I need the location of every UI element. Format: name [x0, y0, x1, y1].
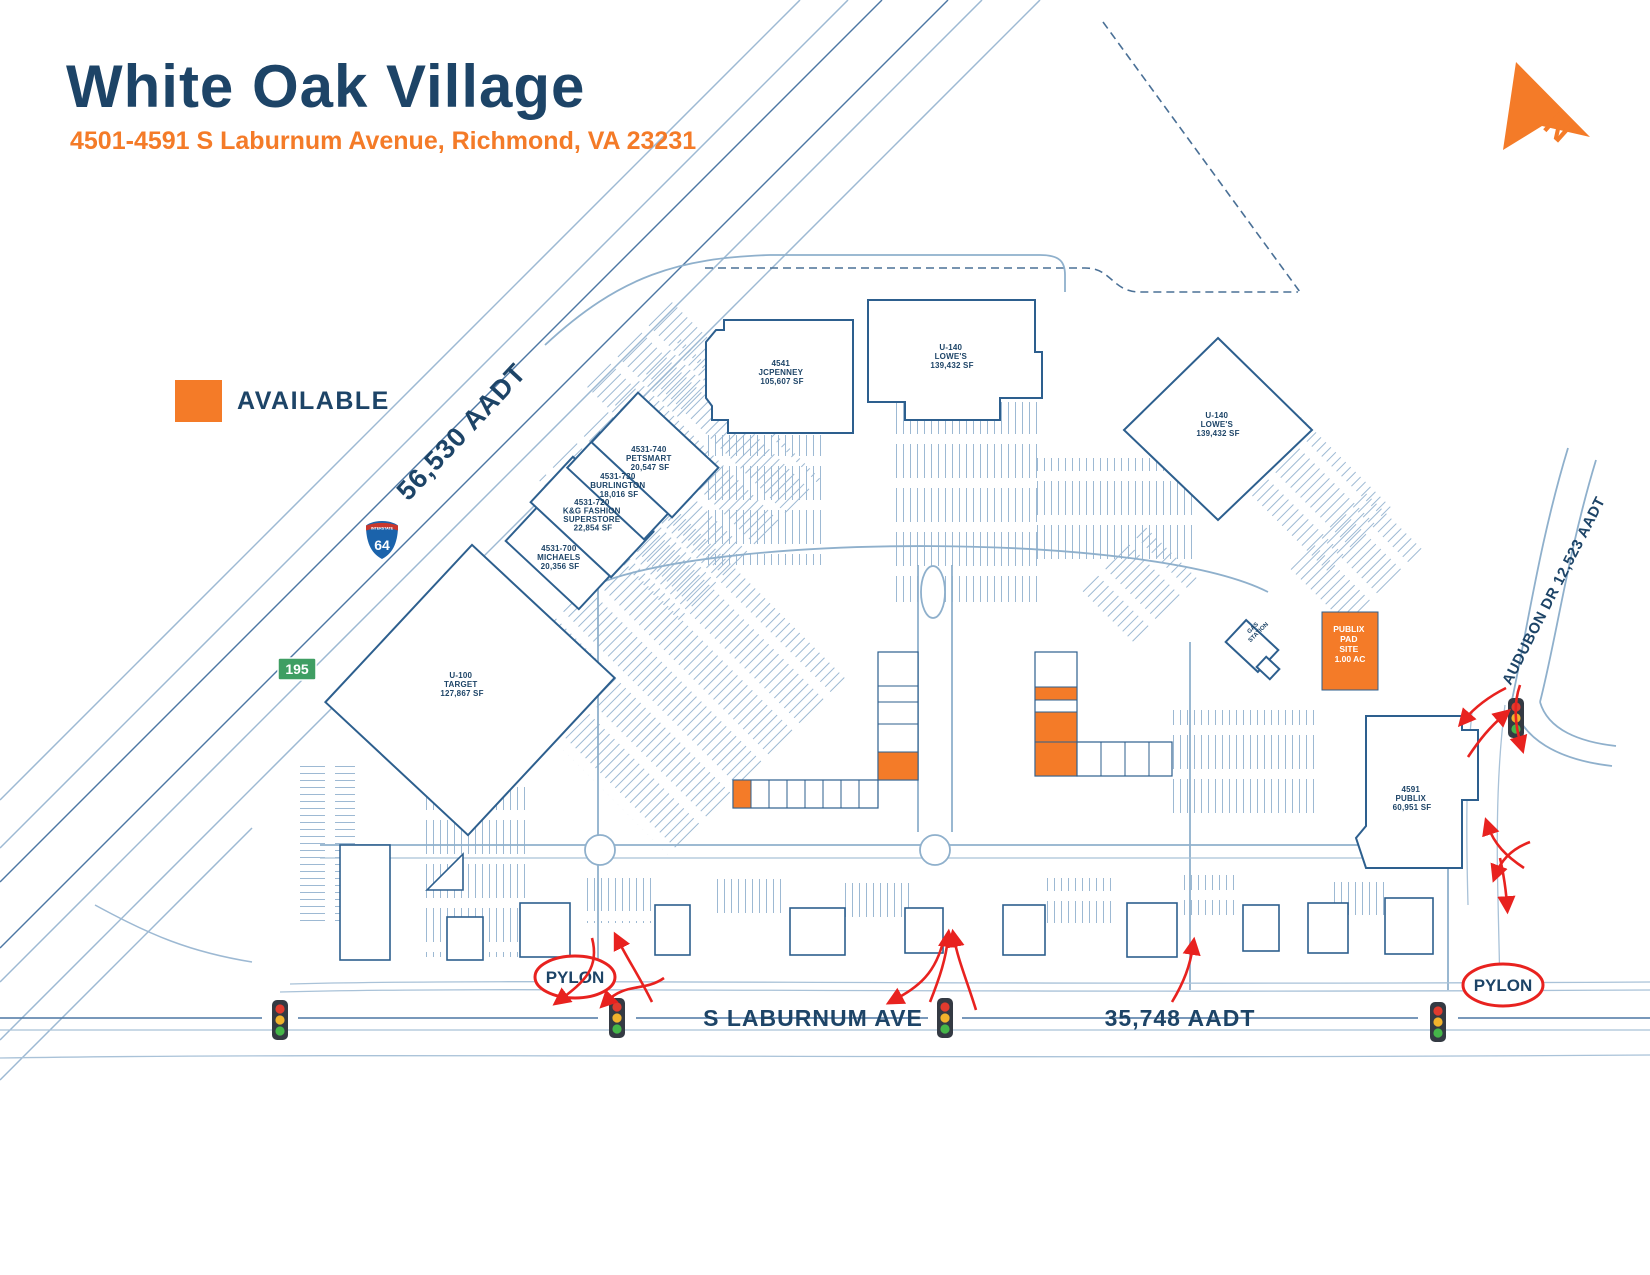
pylon-sign-east: PYLON — [1463, 964, 1543, 1006]
available-color-swatch — [175, 380, 222, 422]
laburnum-ave-label: S LABURNUM AVE — [703, 1005, 923, 1031]
svg-text:195: 195 — [285, 661, 309, 677]
svg-text:INTERSTATE: INTERSTATE — [371, 527, 394, 531]
legend: AVAILABLE — [175, 380, 390, 422]
route-195-shield: 195 — [278, 658, 316, 680]
site-plan-page: 4541 JCPENNEY 105,607 SF U-140 LOWE'S 13… — [0, 0, 1650, 1275]
page-subtitle: 4501-4591 S Laburnum Avenue, Richmond, V… — [70, 127, 696, 156]
available-unit — [1035, 742, 1077, 776]
label-michaels: 4531-700 MICHAELS 20,356 SF — [537, 544, 583, 571]
north-arrow-icon: N — [1503, 62, 1590, 150]
svg-text:64: 64 — [374, 537, 390, 553]
page-title: White Oak Village — [66, 52, 585, 121]
svg-text:PYLON: PYLON — [1474, 976, 1533, 995]
audubon-dr-label: AUDUBON DR 12,523 AADT — [1499, 494, 1609, 688]
traffic-signal-icon — [609, 998, 625, 1038]
site-plan-map: 4541 JCPENNEY 105,607 SF U-140 LOWE'S 13… — [0, 0, 1650, 1275]
available-label: AVAILABLE — [237, 387, 390, 416]
available-unit — [733, 780, 751, 808]
traffic-signal-icon — [1430, 1002, 1446, 1042]
available-unit — [1035, 712, 1077, 742]
traffic-signal-icon — [937, 998, 953, 1038]
interstate-64-shield: INTERSTATE 64 — [366, 521, 398, 559]
traffic-signal-icon — [272, 1000, 288, 1040]
available-unit — [878, 752, 918, 780]
available-unit — [1035, 687, 1077, 700]
laburnum-aadt-label: 35,748 AADT — [1105, 1005, 1256, 1031]
pylon-sign-west: PYLON — [535, 956, 615, 998]
property-boundary — [705, 22, 1300, 292]
label-petsmart: 4531-740 PETSMART 20,547 SF — [626, 445, 674, 472]
svg-text:PYLON: PYLON — [546, 968, 605, 987]
highway-aadt-label: 56,530 AADT — [391, 358, 532, 507]
